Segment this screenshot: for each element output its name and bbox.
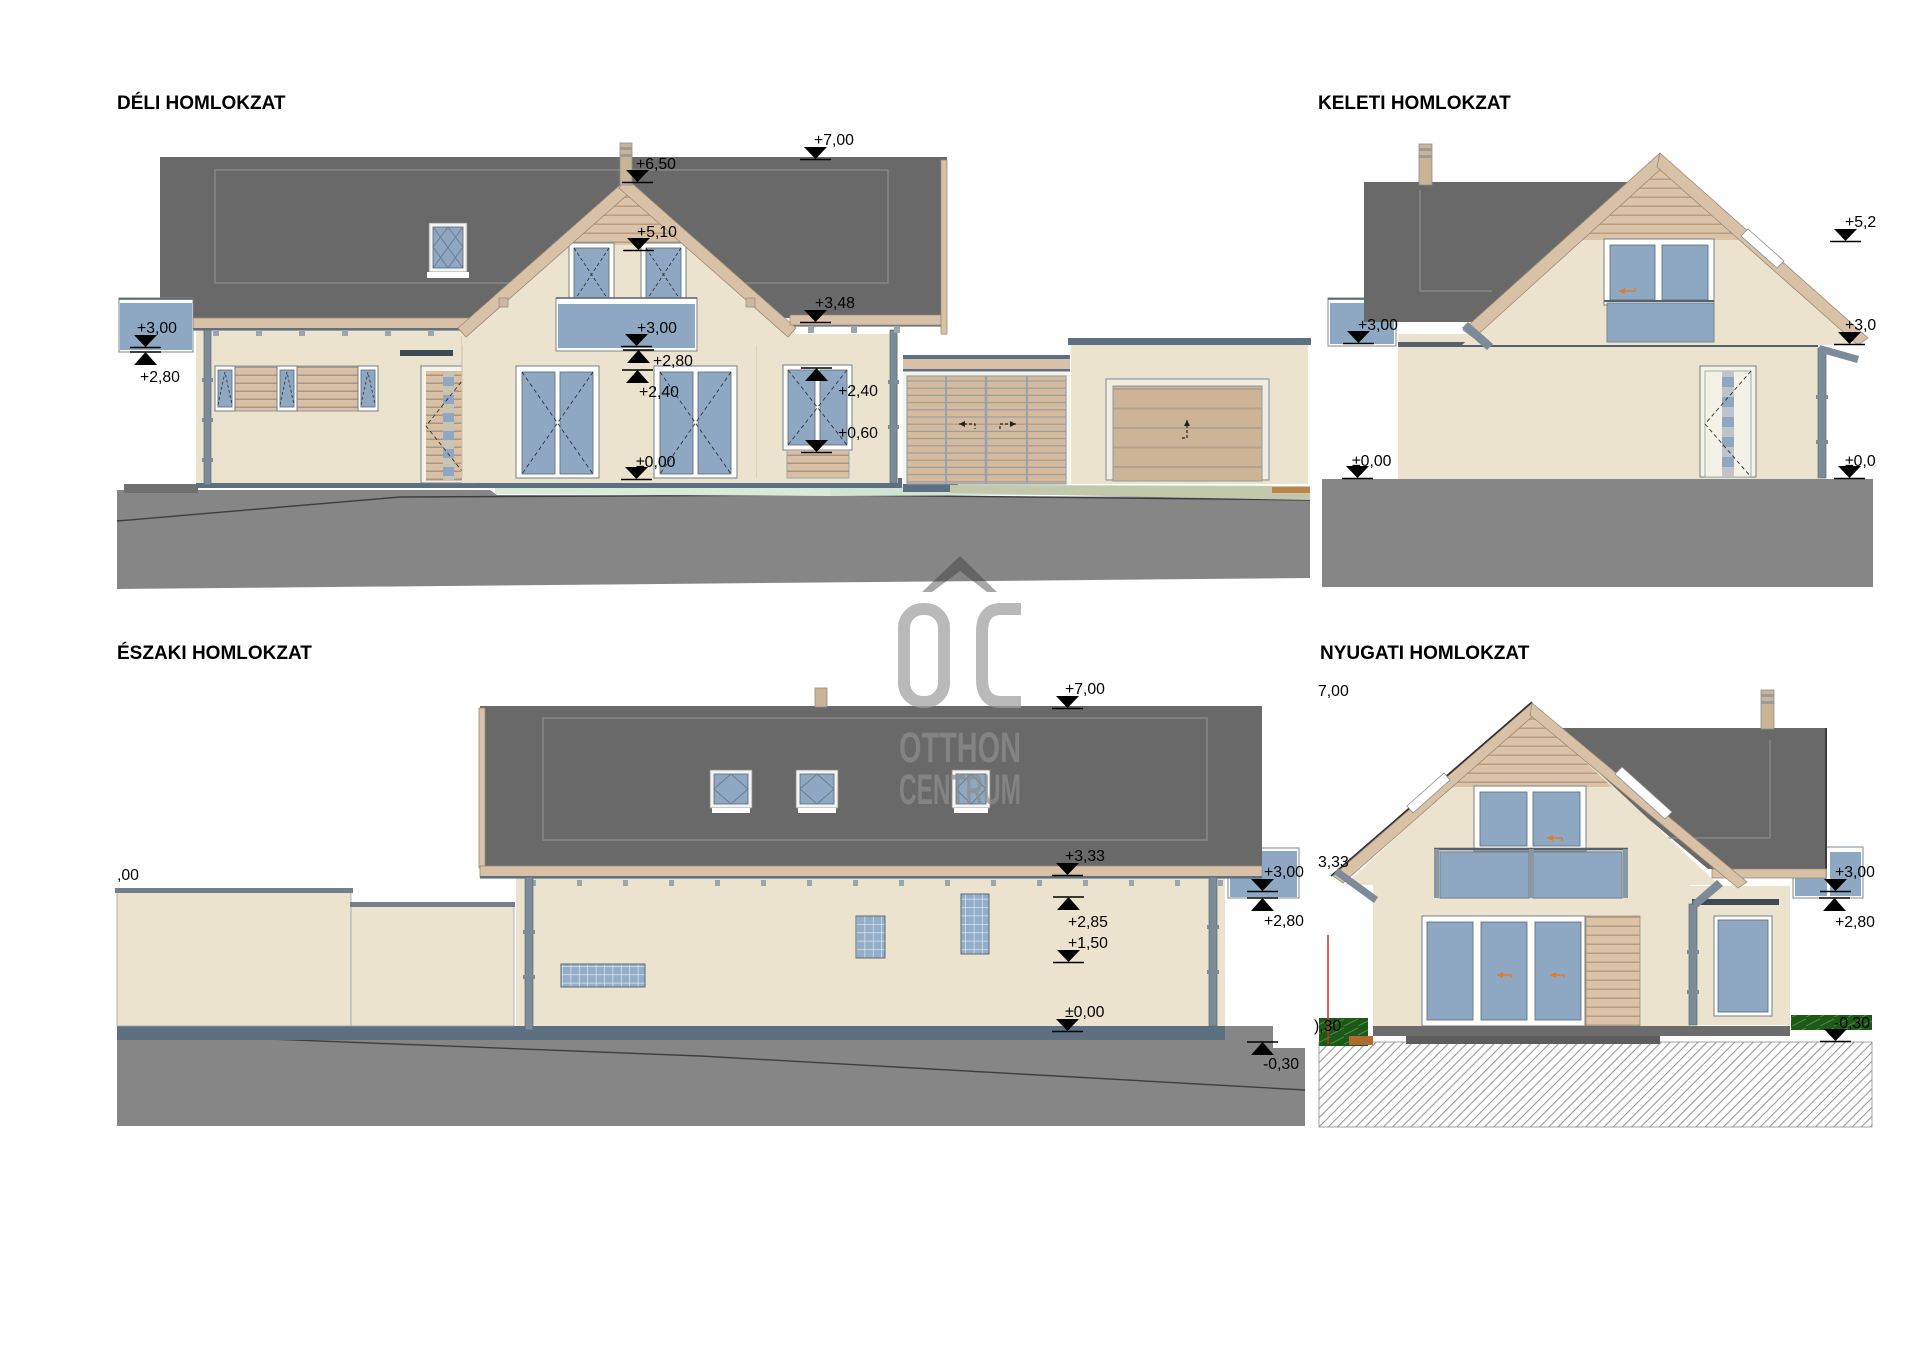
svg-text:+3,00: +3,00 [137, 320, 177, 337]
svg-text:7,00: 7,00 [1318, 683, 1349, 700]
svg-text:3,33: 3,33 [1318, 854, 1349, 871]
svg-text:KELETI HOMLOKZAT: KELETI HOMLOKZAT [1318, 93, 1511, 114]
svg-text:-0,30: -0,30 [1263, 1056, 1299, 1073]
svg-text:+2,40: +2,40 [838, 383, 878, 400]
svg-text:+0,60: +0,60 [838, 425, 878, 442]
svg-text:+3,48: +3,48 [815, 295, 855, 312]
svg-text:+3,00: +3,00 [1835, 864, 1875, 881]
svg-text:+2,85: +2,85 [1068, 914, 1108, 931]
svg-text:+2,80: +2,80 [140, 369, 180, 386]
svg-text:±0,00: ±0,00 [1065, 1004, 1105, 1021]
svg-text:CENTRUM: CENTRUM [899, 766, 1021, 814]
svg-text:ÉSZAKI HOMLOKZAT: ÉSZAKI HOMLOKZAT [117, 642, 312, 664]
svg-text:+2,40: +2,40 [639, 384, 679, 401]
svg-text:+3,0: +3,0 [1845, 317, 1876, 334]
svg-text:OTTHON: OTTHON [899, 724, 1021, 772]
svg-text:+2,80: +2,80 [1264, 913, 1304, 930]
svg-text:+2,80: +2,80 [1835, 914, 1875, 931]
svg-text:+1,50: +1,50 [1068, 935, 1108, 952]
svg-text:+7,00: +7,00 [1065, 681, 1105, 698]
svg-text:DÉLI HOMLOKZAT: DÉLI HOMLOKZAT [117, 92, 286, 114]
svg-text:NYUGATI HOMLOKZAT: NYUGATI HOMLOKZAT [1320, 643, 1530, 664]
svg-text:,00: ,00 [117, 867, 139, 884]
svg-text:+3,00: +3,00 [1264, 864, 1304, 881]
svg-text:+3,33: +3,33 [1065, 848, 1105, 865]
svg-text:+2,80: +2,80 [653, 353, 693, 370]
svg-text:),30: ),30 [1314, 1018, 1341, 1035]
svg-text:+7,00: +7,00 [814, 132, 854, 149]
svg-text:+5,2: +5,2 [1845, 214, 1876, 231]
